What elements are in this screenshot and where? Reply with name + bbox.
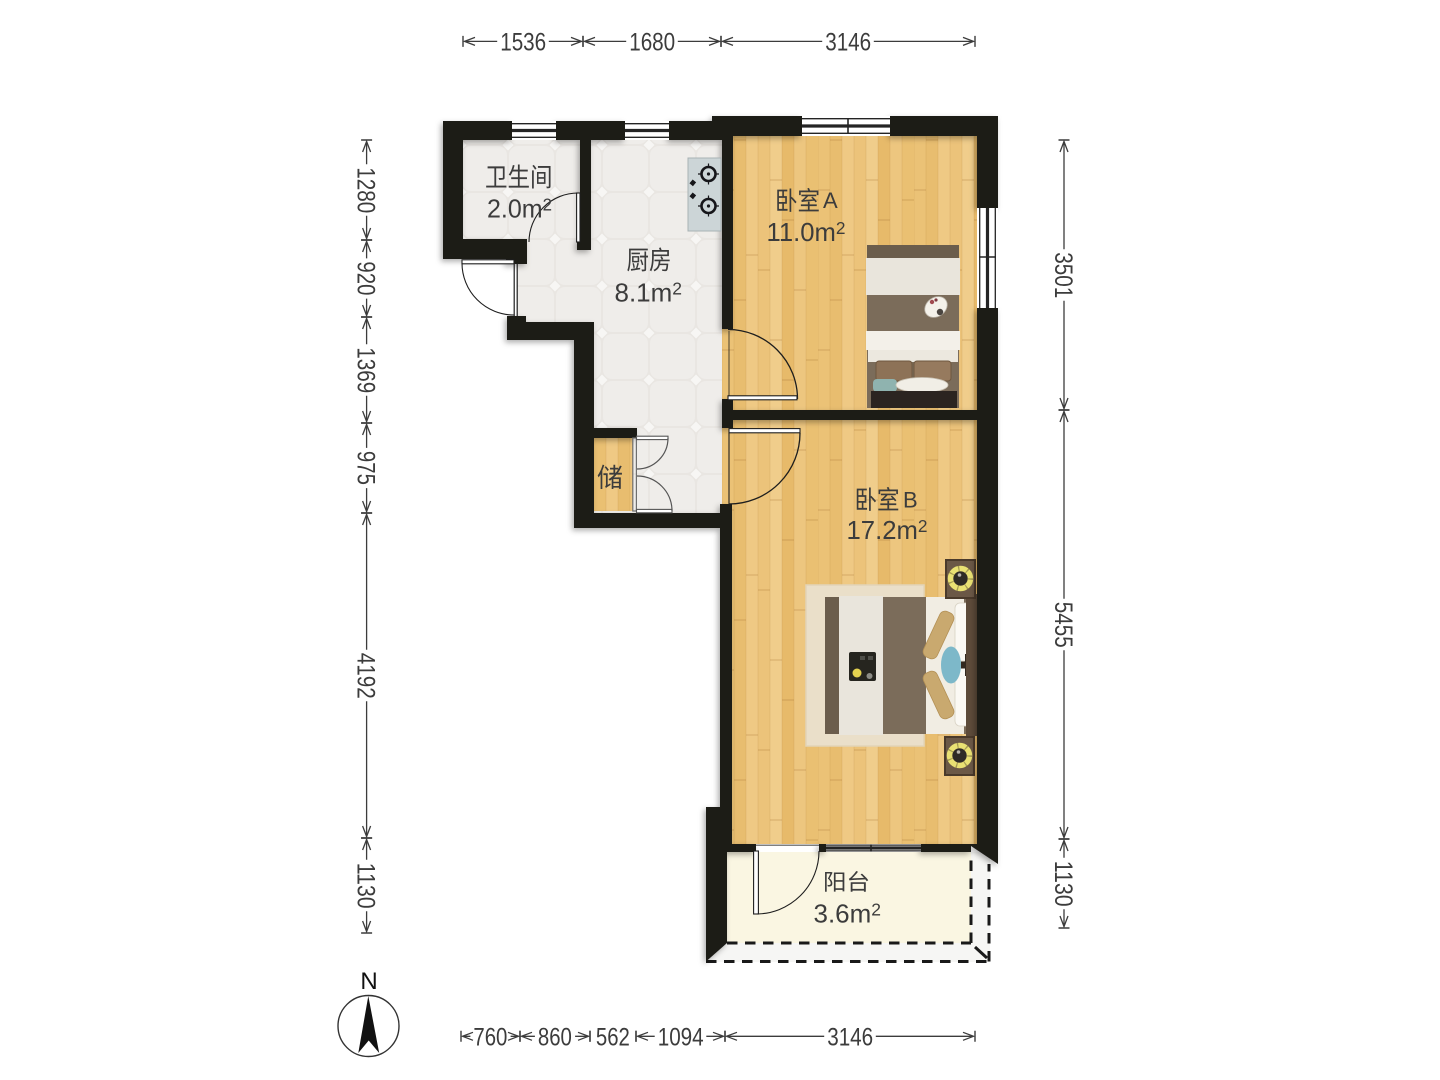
svg-text:11.0m2: 11.0m2 — [767, 217, 846, 247]
svg-text:B: B — [903, 488, 918, 513]
svg-text:760: 760 — [473, 1023, 507, 1051]
svg-text:1130: 1130 — [352, 863, 380, 909]
svg-text:920: 920 — [352, 261, 380, 295]
svg-text:1680: 1680 — [629, 28, 675, 56]
svg-text:17.2m2: 17.2m2 — [847, 515, 928, 545]
svg-text:8.1m2: 8.1m2 — [615, 278, 683, 308]
svg-text:3501: 3501 — [1049, 252, 1077, 298]
svg-text:N: N — [360, 968, 377, 995]
svg-text:1536: 1536 — [500, 28, 546, 56]
svg-text:2.0m2: 2.0m2 — [487, 194, 552, 224]
svg-text:5455: 5455 — [1049, 602, 1077, 648]
svg-text:562: 562 — [596, 1023, 630, 1051]
svg-text:4192: 4192 — [352, 653, 380, 699]
svg-text:1094: 1094 — [658, 1023, 704, 1051]
svg-text:3146: 3146 — [825, 28, 871, 56]
svg-text:975: 975 — [352, 451, 380, 485]
svg-text:3146: 3146 — [827, 1023, 873, 1051]
svg-text:860: 860 — [538, 1023, 572, 1051]
svg-text:1130: 1130 — [1049, 861, 1077, 907]
svg-text:1280: 1280 — [352, 167, 380, 213]
svg-text:A: A — [823, 188, 838, 213]
svg-text:1369: 1369 — [352, 347, 380, 393]
svg-text:3.6m2: 3.6m2 — [814, 899, 882, 929]
